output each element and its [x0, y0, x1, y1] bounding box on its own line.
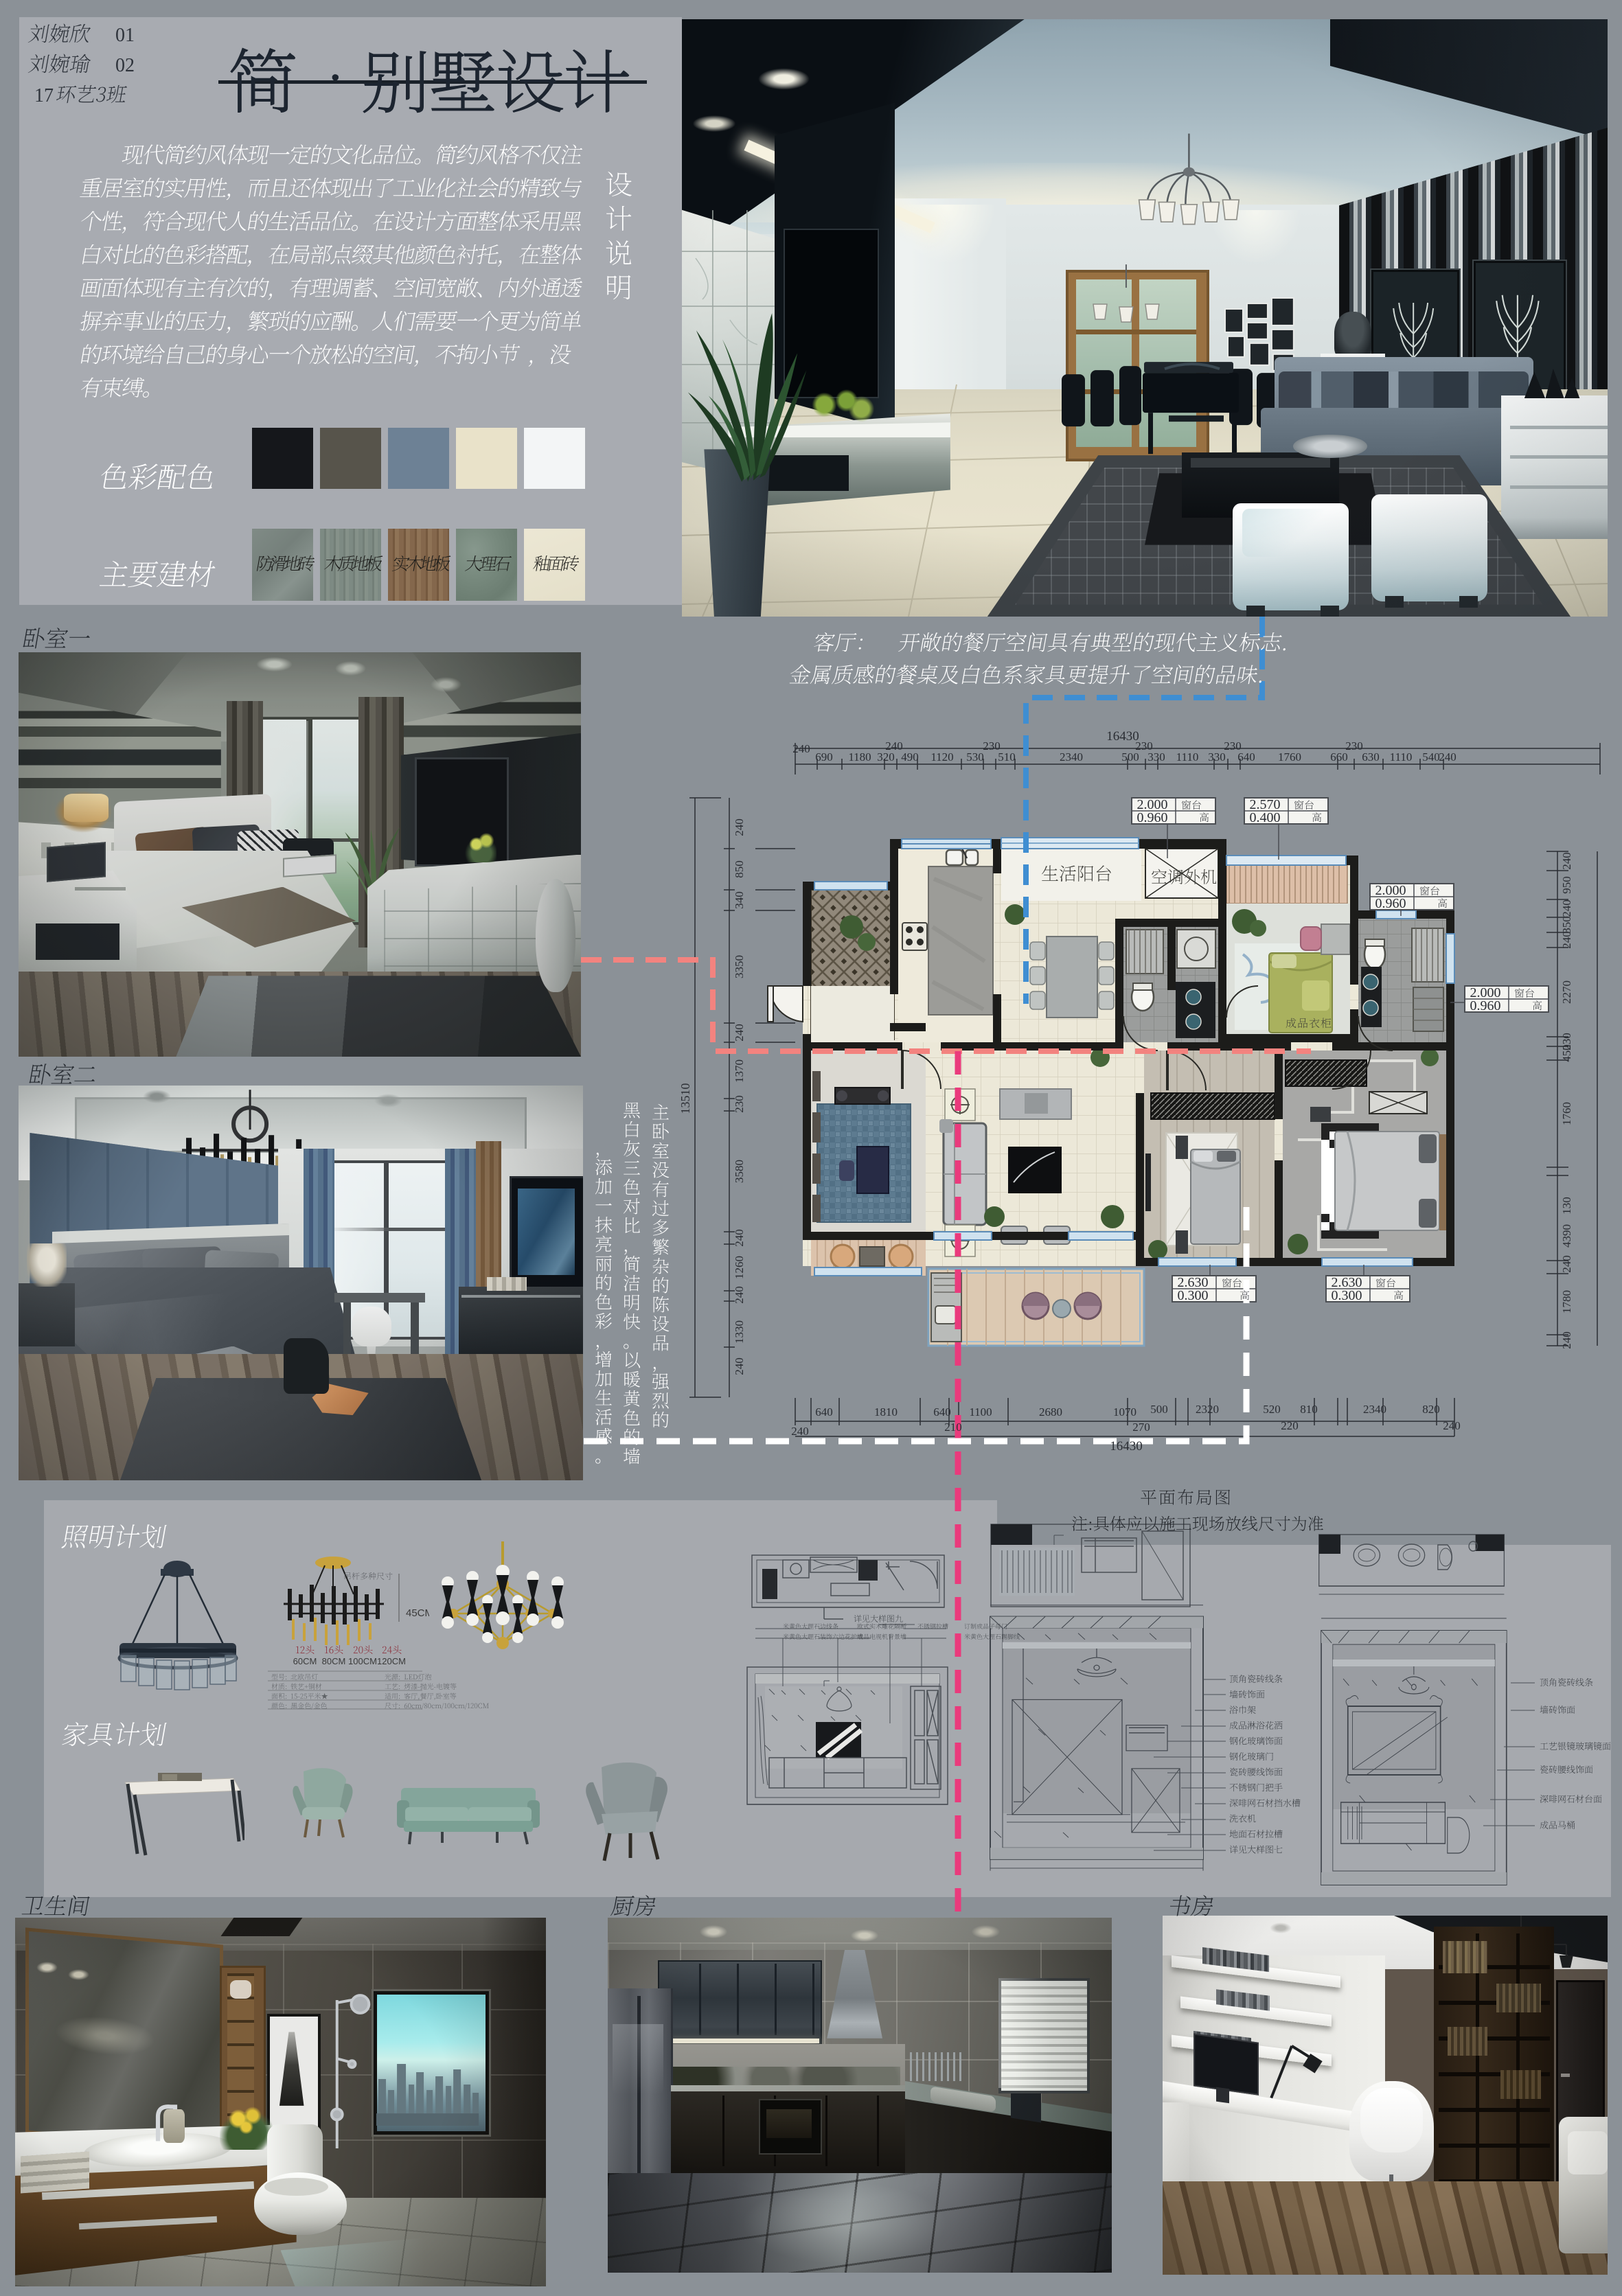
svg-text:640: 640: [933, 1405, 951, 1419]
svg-text:240: 240: [1560, 1255, 1573, 1273]
svg-text:1810: 1810: [874, 1405, 898, 1419]
svg-text:1100: 1100: [969, 1405, 992, 1419]
svg-text:16430: 16430: [1110, 1439, 1143, 1454]
svg-text:850: 850: [733, 860, 746, 878]
svg-text:240: 240: [1439, 750, 1457, 764]
svg-text:490: 490: [901, 750, 919, 764]
svg-text:1330: 1330: [733, 1320, 746, 1344]
svg-text:1370: 1370: [733, 1059, 746, 1083]
svg-text:450: 450: [1560, 1044, 1573, 1062]
svg-text:510: 510: [998, 750, 1016, 764]
svg-text:130: 130: [1560, 1197, 1573, 1215]
svg-text:2320: 2320: [1196, 1403, 1219, 1416]
svg-text:240: 240: [1560, 1331, 1573, 1349]
svg-text:540: 540: [1422, 750, 1440, 764]
svg-text:640: 640: [815, 1405, 833, 1419]
svg-text:13510: 13510: [678, 1083, 692, 1114]
svg-text:3350: 3350: [733, 955, 746, 978]
svg-text:0.960: 0.960: [1137, 810, 1168, 825]
svg-text:340: 340: [733, 891, 746, 909]
svg-text:640: 640: [1237, 750, 1255, 764]
svg-text:2340: 2340: [1060, 750, 1083, 764]
svg-text:0.400: 0.400: [1250, 810, 1281, 825]
svg-text:810: 810: [1300, 1403, 1318, 1416]
svg-text:60CM: 60CM: [293, 1656, 317, 1666]
svg-text:3580: 3580: [733, 1160, 746, 1183]
svg-text:1760: 1760: [1560, 1102, 1573, 1125]
svg-text:0.960: 0.960: [1470, 998, 1501, 1013]
svg-text:1260: 1260: [733, 1256, 746, 1279]
svg-text:270: 270: [1132, 1421, 1150, 1434]
svg-text:01: 01: [115, 25, 135, 46]
svg-text:16430: 16430: [1106, 729, 1139, 744]
svg-text:520: 520: [1263, 1403, 1281, 1416]
svg-text:240: 240: [733, 818, 746, 836]
svg-text:240: 240: [1560, 899, 1573, 917]
svg-text:0.300: 0.300: [1178, 1288, 1209, 1303]
svg-text:220: 220: [1281, 1419, 1299, 1432]
svg-text:530: 530: [966, 750, 984, 764]
svg-text:240: 240: [1560, 931, 1573, 949]
svg-text:240: 240: [791, 1425, 809, 1438]
svg-text:820: 820: [1422, 1403, 1440, 1416]
svg-text:2340: 2340: [1363, 1403, 1386, 1416]
svg-text:500: 500: [1150, 1403, 1168, 1416]
svg-text:02: 02: [115, 55, 135, 76]
svg-text:1110: 1110: [1390, 750, 1413, 764]
svg-text:1180: 1180: [848, 750, 871, 764]
svg-text:0.300: 0.300: [1332, 1288, 1362, 1303]
svg-text:330: 330: [1208, 750, 1226, 764]
svg-text:330: 330: [1147, 750, 1165, 764]
svg-text:1070: 1070: [1113, 1405, 1136, 1419]
svg-text:240: 240: [885, 739, 903, 753]
svg-text:120CM: 120CM: [377, 1656, 406, 1666]
svg-text:240: 240: [792, 742, 810, 755]
svg-text:4390: 4390: [1560, 1224, 1573, 1248]
svg-text:950: 950: [1560, 876, 1573, 894]
svg-text:630: 630: [1362, 750, 1380, 764]
svg-text:100CM: 100CM: [348, 1656, 377, 1666]
svg-text:210: 210: [944, 1421, 962, 1434]
svg-text:230: 230: [733, 1095, 746, 1113]
svg-text:240: 240: [733, 1286, 746, 1304]
svg-text:240: 240: [733, 1229, 746, 1247]
svg-text:350: 350: [1560, 916, 1573, 934]
svg-text:1780: 1780: [1560, 1290, 1573, 1313]
svg-text:80CM: 80CM: [322, 1656, 346, 1666]
svg-text:1110: 1110: [1176, 750, 1199, 764]
svg-text:1120: 1120: [930, 750, 953, 764]
svg-text:17: 17: [34, 85, 54, 106]
svg-text:0.960: 0.960: [1375, 896, 1406, 911]
svg-text:2680: 2680: [1039, 1405, 1062, 1419]
svg-text:240: 240: [1560, 852, 1573, 870]
svg-text:240: 240: [733, 1357, 746, 1375]
svg-text:240: 240: [1443, 1419, 1461, 1432]
svg-text:240: 240: [733, 1024, 746, 1042]
svg-text:230: 230: [1345, 739, 1363, 753]
svg-text:690: 690: [815, 750, 833, 764]
svg-text:2270: 2270: [1560, 980, 1573, 1004]
svg-text:1760: 1760: [1278, 750, 1301, 764]
